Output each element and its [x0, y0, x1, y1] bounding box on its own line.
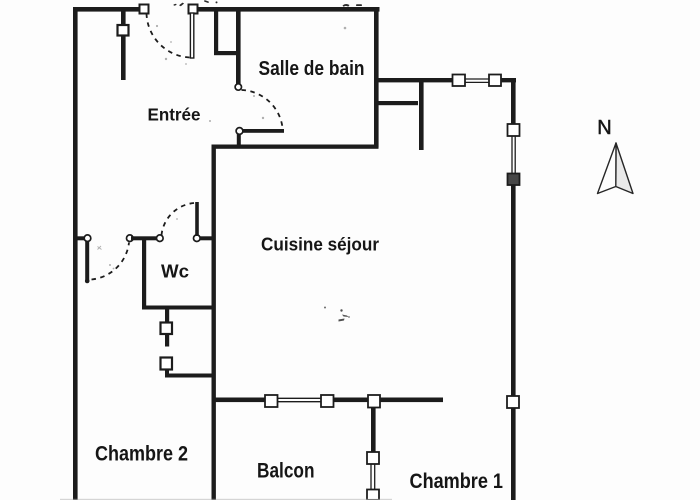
- svg-text:Balcon: Balcon: [257, 460, 315, 483]
- svg-text:Salle de bain: Salle de bain: [259, 58, 365, 80]
- svg-text:Wc: Wc: [161, 262, 189, 282]
- svg-text:Cuisine séjour: Cuisine séjour: [261, 234, 379, 255]
- svg-text:Chambre 1: Chambre 1: [410, 470, 504, 493]
- svg-text:Entrée: Entrée: [148, 105, 201, 125]
- svg-text:Chambre 2: Chambre 2: [95, 442, 188, 466]
- svg-text:N: N: [597, 117, 611, 139]
